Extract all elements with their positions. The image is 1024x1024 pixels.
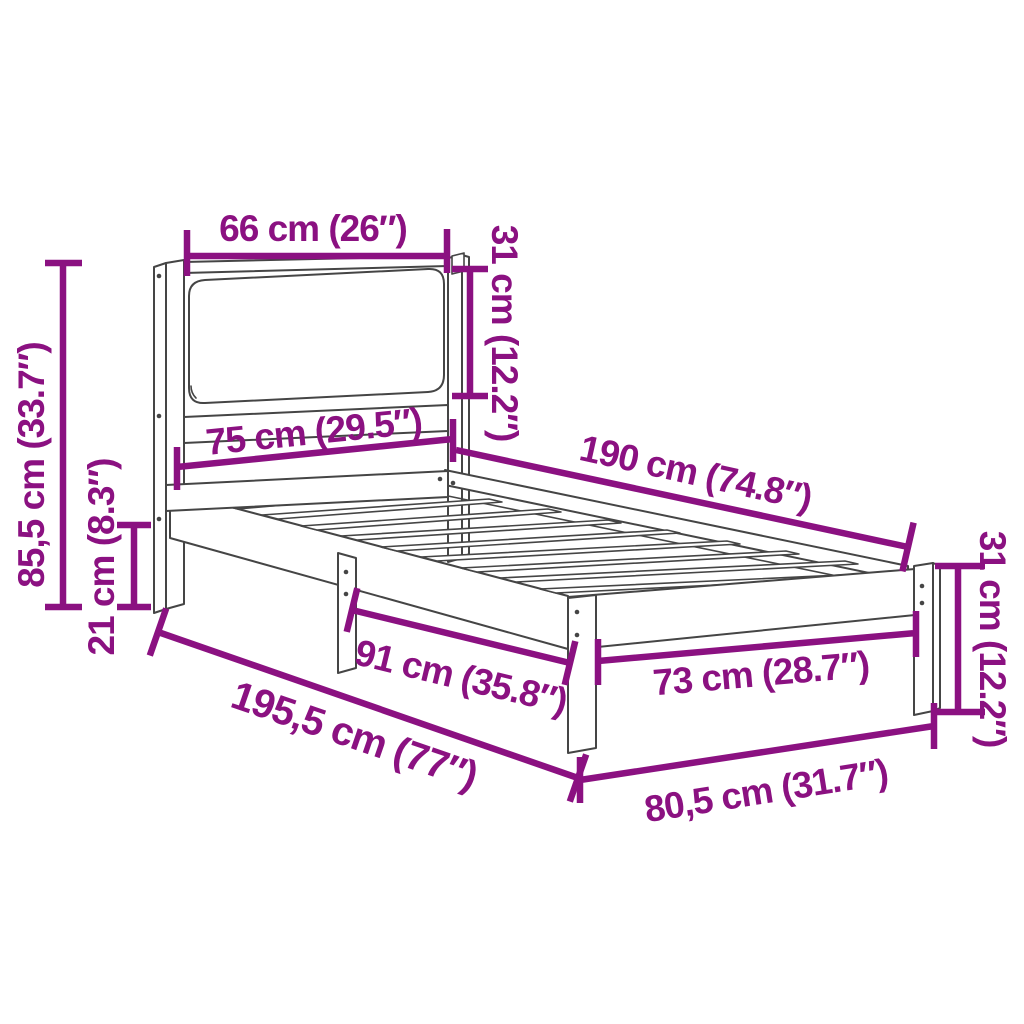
dimension-label: 31 cm (12.2″) [972,531,1013,748]
screw-icon [157,274,162,279]
bed-dimension-diagram: 66 cm (26″) 31 cm (12.2″) 85,5 cm (33.7″… [0,0,1024,1024]
screw-icon [157,517,162,522]
dimension-label: 85,5 cm (33.7″) [11,342,52,587]
dimension-label: 66 cm (26″) [219,208,407,249]
near-foot-leg [568,595,596,753]
headboard-cushion [189,269,444,403]
dimension-label: 31 cm (12.2″) [484,225,525,442]
dimension-total-width: 80,5 cm (31.7″) [580,703,934,830]
headboard-left-post-side [154,263,166,613]
headboard-left-post [166,260,184,609]
screw-icon [920,584,925,589]
screw-icon [344,570,349,575]
screw-icon [575,610,580,615]
screw-icon [451,481,456,486]
dimension-headboard-total-height: 85,5 cm (33.7″) [11,263,82,607]
dimension-foot-end-height: 31 cm (12.2″) [935,531,1013,748]
screw-icon [575,633,580,638]
dimension-frame-ground-clearance: 21 cm (8.3″) [81,459,151,656]
screw-icon [157,414,162,419]
dimension-label: 21 cm (8.3″) [81,459,122,656]
screw-icon [438,477,443,482]
screw-icon [920,601,925,606]
far-foot-leg-side [933,563,940,711]
screw-icon [344,592,349,597]
diagram-canvas: 66 cm (26″) 31 cm (12.2″) 85,5 cm (33.7″… [0,0,1024,1024]
